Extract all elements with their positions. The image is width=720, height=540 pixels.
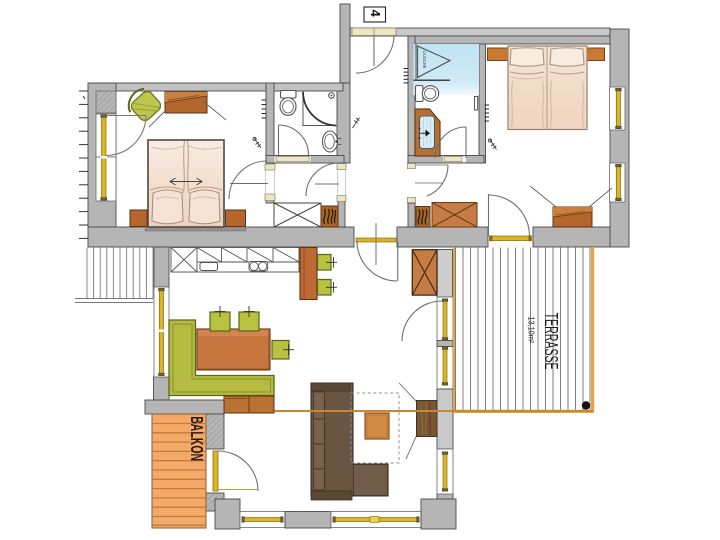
- svg-text:4: 4: [368, 10, 383, 18]
- svg-text:13,10m²: 13,10m²: [526, 317, 536, 344]
- svg-text:DUSCHE: DUSCHE: [422, 51, 427, 69]
- svg-text:BALKON: BALKON: [186, 416, 205, 461]
- svg-text:TERRASSE: TERRASSE: [540, 313, 561, 370]
